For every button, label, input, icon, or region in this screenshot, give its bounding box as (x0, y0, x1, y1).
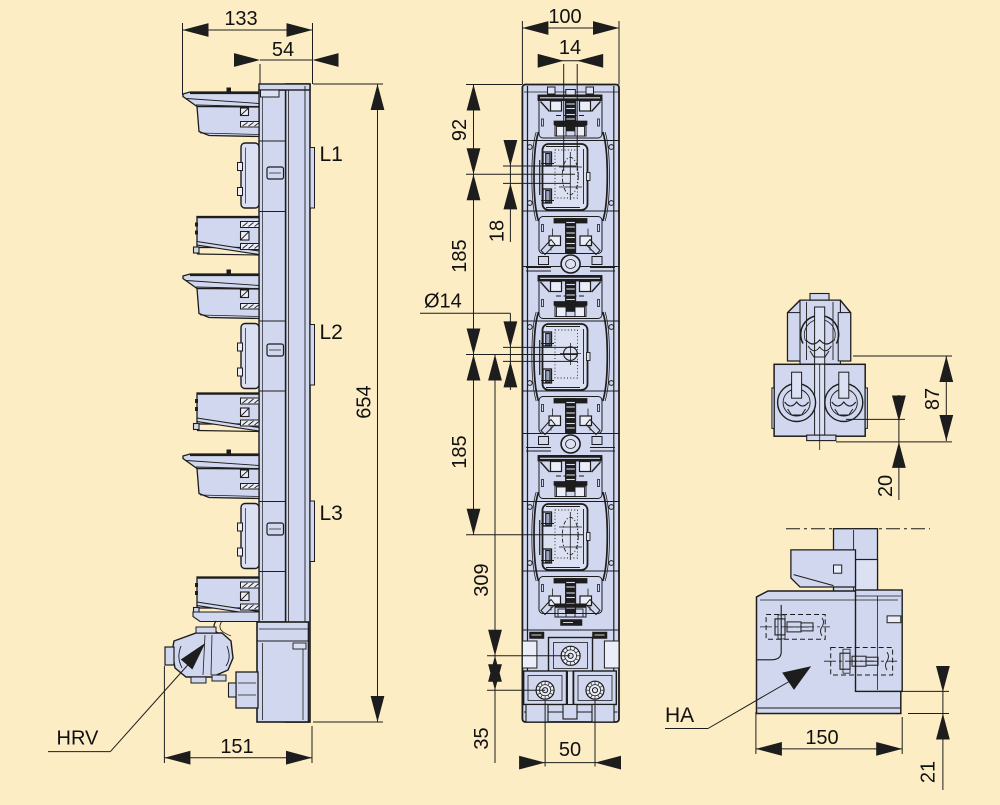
svg-text:50: 50 (559, 739, 581, 761)
svg-text:185: 185 (449, 239, 471, 272)
svg-text:20: 20 (875, 475, 897, 497)
svg-text:L1: L1 (320, 143, 343, 166)
svg-text:54: 54 (272, 39, 294, 61)
svg-text:L2: L2 (320, 321, 343, 344)
svg-text:35: 35 (471, 727, 493, 749)
svg-text:185: 185 (449, 435, 471, 468)
svg-text:L3: L3 (320, 502, 343, 525)
svg-text:14: 14 (559, 37, 581, 59)
svg-text:92: 92 (449, 119, 471, 141)
svg-text:87: 87 (922, 388, 944, 410)
svg-text:Ø14: Ø14 (424, 291, 462, 313)
svg-text:100: 100 (548, 6, 581, 28)
svg-text:21: 21 (918, 761, 940, 783)
svg-text:654: 654 (354, 385, 376, 418)
svg-text:133: 133 (224, 8, 257, 30)
svg-text:151: 151 (220, 736, 253, 758)
svg-text:309: 309 (471, 563, 493, 596)
svg-text:150: 150 (805, 727, 838, 749)
svg-text:HRV: HRV (57, 728, 100, 750)
svg-text:HA: HA (665, 704, 694, 727)
svg-text:18: 18 (487, 220, 509, 242)
